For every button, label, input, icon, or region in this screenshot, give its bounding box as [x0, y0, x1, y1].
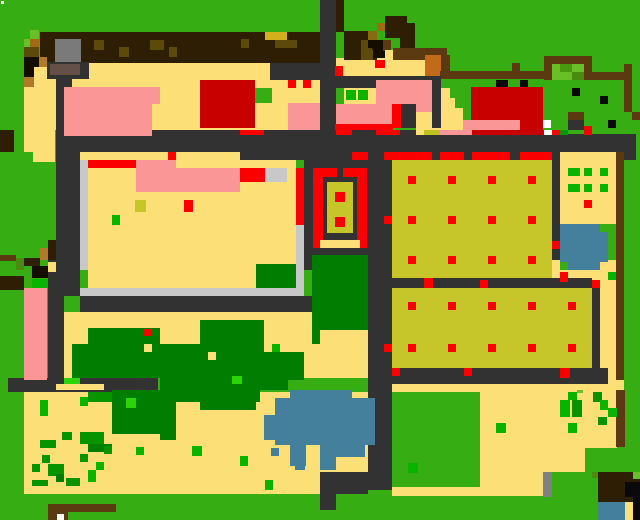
edge-tile: [32, 266, 48, 278]
west-edge: [0, 0, 640, 520]
edge-tile: [0, 276, 24, 290]
game-map[interactable]: [0, 0, 640, 520]
edge-tile: [16, 258, 24, 270]
edge-tile: [40, 248, 48, 260]
edge-tile: [48, 240, 56, 260]
edge-tile: [1, 1, 4, 4]
edge-tile: [0, 255, 16, 261]
edge-tile: [32, 279, 48, 288]
edge-tile: [24, 288, 47, 380]
edge-tile: [24, 258, 40, 266]
edge-tile: [48, 262, 56, 272]
